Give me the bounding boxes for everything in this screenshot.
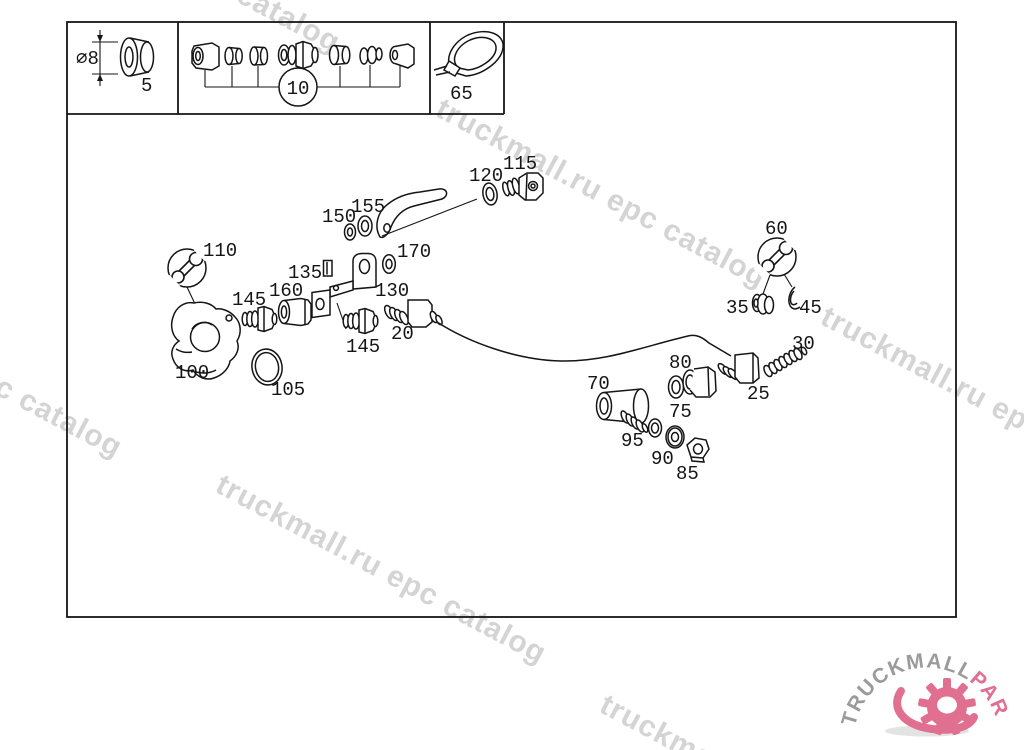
part-155-washer	[358, 216, 372, 236]
part-callout-95[interactable]: 95	[621, 430, 644, 452]
truckmall-logo: TRUCKMALLPARTS	[0, 0, 1013, 737]
part-85-nut	[687, 438, 709, 462]
part-90-grommet	[666, 426, 684, 448]
lever-arm	[377, 189, 477, 237]
cable-tie-icon	[434, 32, 503, 76]
part-95-washer	[649, 419, 662, 437]
part-callout-25[interactable]: 25	[747, 383, 770, 405]
logo-text: TRUCKMALLPARTS	[0, 0, 1013, 728]
part-callout-5[interactable]: 5	[141, 75, 152, 97]
epc-diagram-page: truckmall.ru epc catalog truckmall.ru ep…	[0, 0, 1024, 750]
part-25-elbow-fitting	[717, 353, 759, 383]
part-170-washer	[383, 255, 396, 274]
tool-note-60	[755, 235, 799, 294]
part-callout-30[interactable]: 30	[792, 333, 815, 355]
part-callout-130[interactable]: 130	[375, 280, 409, 302]
part-callout-145-left[interactable]: 145	[232, 289, 266, 311]
part-callout-70[interactable]: 70	[587, 373, 610, 395]
part-35-grommet	[753, 294, 774, 314]
part-80-washer	[669, 376, 684, 398]
part-callout-60[interactable]: 60	[765, 218, 788, 240]
fitting-icons	[192, 42, 414, 71]
part-callout-135[interactable]: 135	[288, 262, 322, 284]
part-callout-120[interactable]: 120	[469, 165, 503, 187]
part-callout-100[interactable]: 100	[175, 362, 209, 384]
part-callout-45[interactable]: 45	[799, 297, 822, 319]
part-115-banjo-bolt	[501, 173, 543, 200]
part-callout-80[interactable]: 80	[669, 352, 692, 374]
part-callout-20[interactable]: 20	[391, 323, 414, 345]
part-callout-75[interactable]: 75	[669, 401, 692, 423]
part-callout-90[interactable]: 90	[651, 448, 674, 470]
part-callout-105[interactable]: 105	[271, 379, 305, 401]
legend-box-fitting-group: 10	[192, 42, 414, 107]
legend-box-tube: ⌀8 5	[76, 30, 154, 97]
part-70-tee-fitting	[597, 389, 649, 433]
part-callout-170[interactable]: 170	[397, 241, 431, 263]
part-callout-85[interactable]: 85	[676, 463, 699, 485]
legend-box-cable-tie: 65	[434, 32, 503, 105]
part-callout-145-right[interactable]: 145	[346, 336, 380, 358]
part-callout-155[interactable]: 155	[351, 196, 385, 218]
part-callout-110[interactable]: 110	[203, 240, 237, 262]
part-145-fitting-right	[343, 309, 378, 334]
parts-diagram: ⌀8 5	[0, 0, 1024, 750]
part-callout-65[interactable]: 65	[450, 83, 473, 105]
part-135-pin	[324, 261, 333, 277]
part-callout-35[interactable]: 35	[726, 297, 749, 319]
dimension-label: ⌀8	[76, 48, 99, 70]
logo-text-pink: PARTS	[0, 0, 1013, 720]
part-5-tube	[121, 38, 154, 76]
part-callout-115[interactable]: 115	[503, 153, 537, 175]
part-callout-10[interactable]: 10	[287, 78, 310, 100]
part-160-fitting	[279, 299, 312, 326]
